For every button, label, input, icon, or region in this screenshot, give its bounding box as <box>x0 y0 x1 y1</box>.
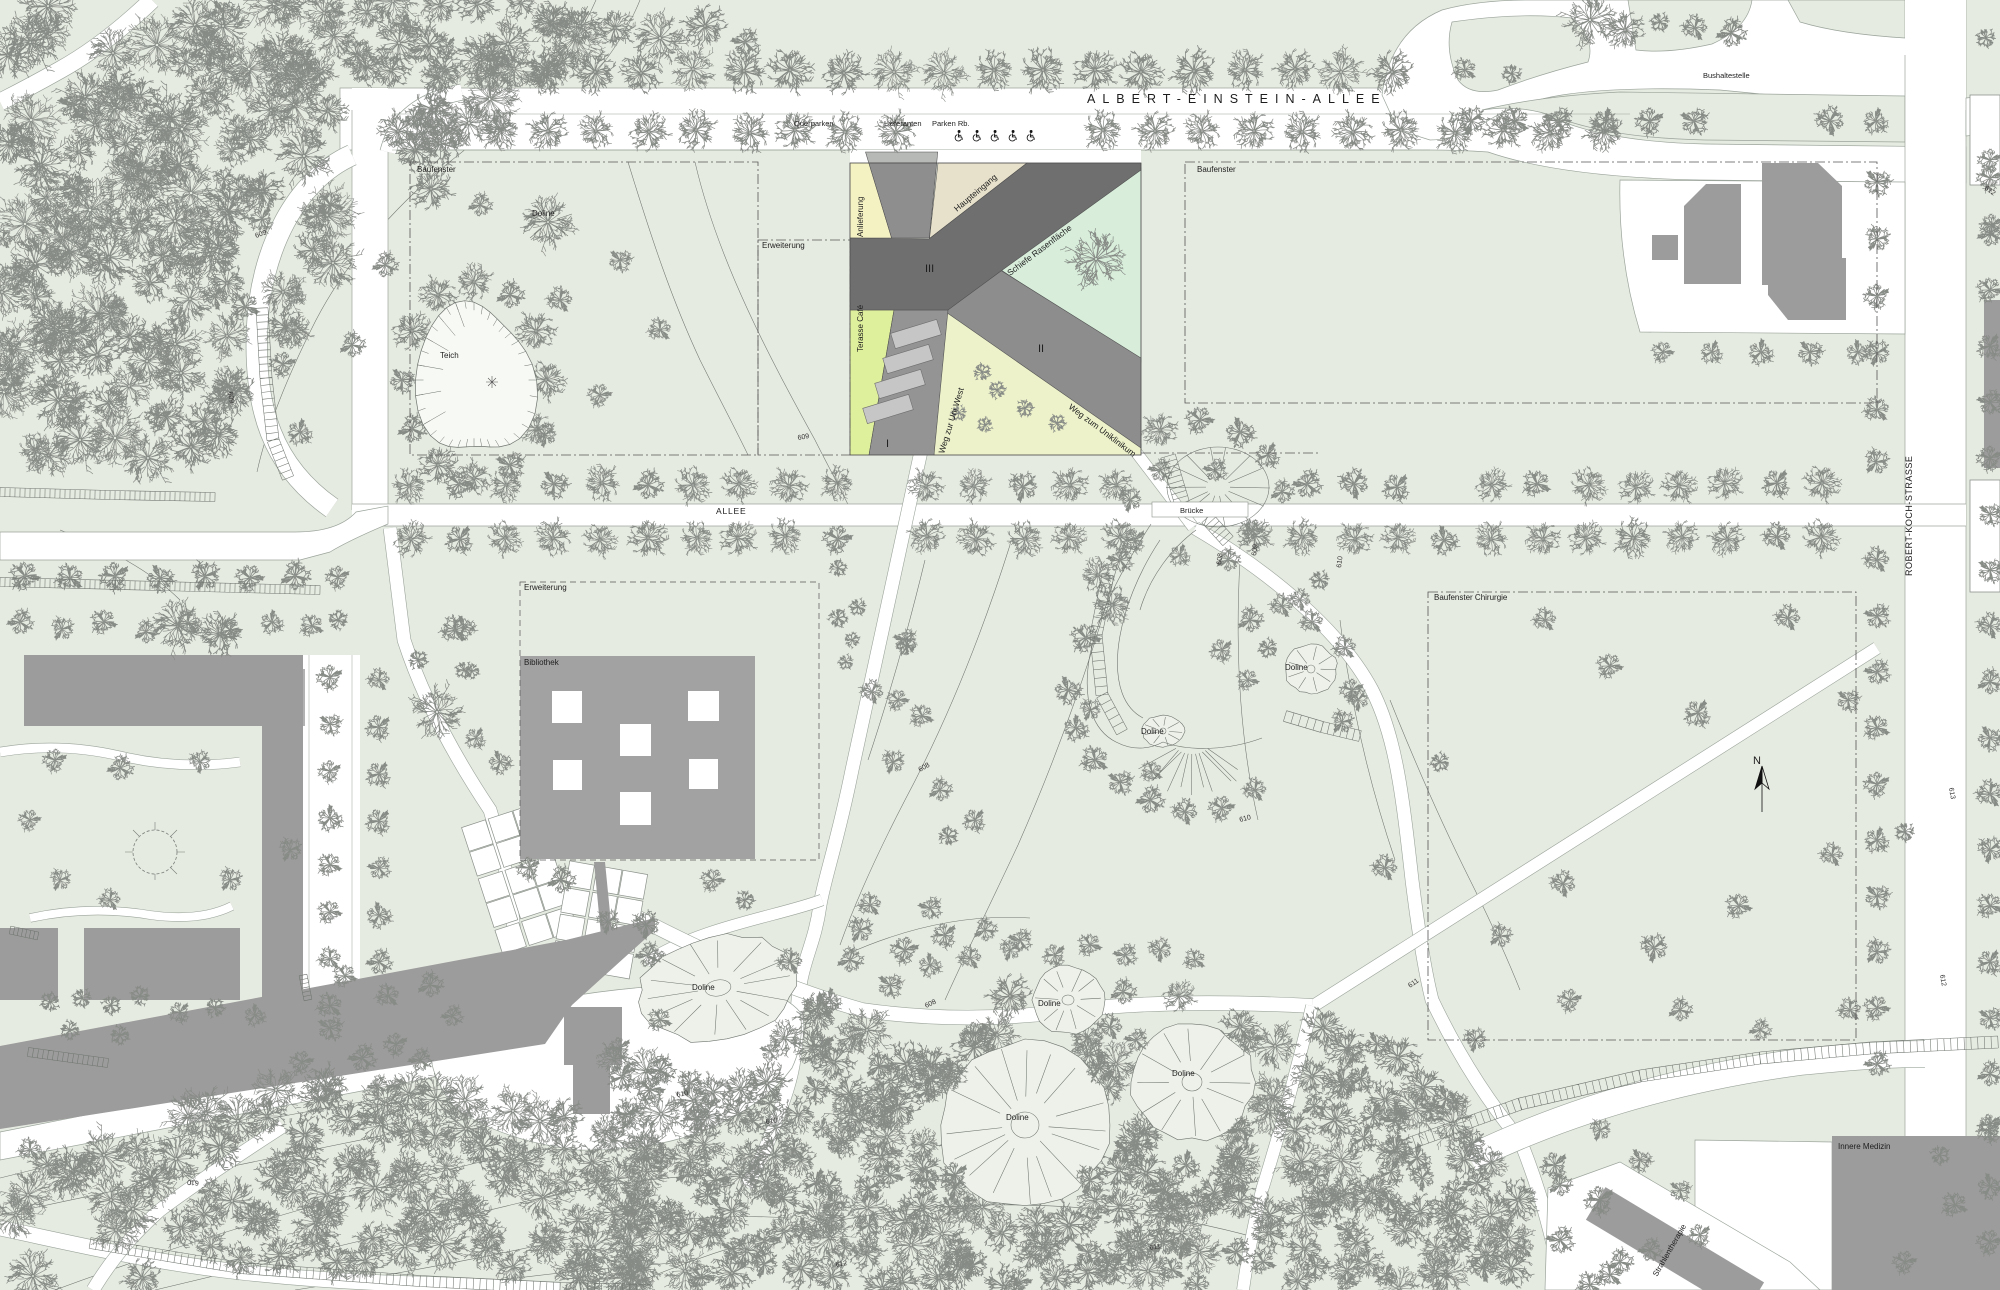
svg-text:Doline: Doline <box>1172 1069 1195 1078</box>
svg-text:Baufenster: Baufenster <box>1197 165 1236 174</box>
svg-text:III: III <box>925 263 934 275</box>
svg-text:I: I <box>886 438 889 450</box>
svg-text:Lieferanten: Lieferanten <box>884 119 922 128</box>
svg-text:Doline: Doline <box>1038 999 1061 1008</box>
svg-text:Doline: Doline <box>1285 663 1308 672</box>
svg-text:Anlieferung: Anlieferung <box>856 197 865 237</box>
svg-text:610: 610 <box>187 1178 199 1186</box>
svg-text:Innere Medizin: Innere Medizin <box>1838 1142 1890 1151</box>
svg-text:Baufenster Chirurgie: Baufenster Chirurgie <box>1434 593 1508 602</box>
svg-text:Bushaltestelle: Bushaltestelle <box>1703 71 1750 80</box>
svg-text:Bibliothek: Bibliothek <box>524 658 560 667</box>
svg-text:ALBERT-EINSTEIN-ALLEE: ALBERT-EINSTEIN-ALLEE <box>1087 92 1387 106</box>
svg-text:610: 610 <box>1336 556 1344 569</box>
svg-text:609: 609 <box>1251 544 1259 557</box>
svg-text:608: 608 <box>1216 553 1224 566</box>
svg-text:N: N <box>1753 755 1761 767</box>
svg-text:ROBERT-KOCH-STRASSE: ROBERT-KOCH-STRASSE <box>1904 456 1914 576</box>
svg-text:Doline: Doline <box>692 983 715 992</box>
svg-text:Doline: Doline <box>1006 1113 1029 1122</box>
svg-text:Erweiterung: Erweiterung <box>524 583 567 592</box>
svg-text:Doline: Doline <box>532 209 555 218</box>
svg-text:Erweiterung: Erweiterung <box>762 241 805 250</box>
svg-text:Parken Rb.: Parken Rb. <box>932 119 970 128</box>
svg-text:Teich: Teich <box>440 351 459 360</box>
svg-text:Brücke: Brücke <box>1180 506 1203 515</box>
svg-text:II: II <box>1038 343 1044 355</box>
svg-text:Doline: Doline <box>1141 727 1164 736</box>
svg-text:Baufenster: Baufenster <box>417 165 456 174</box>
svg-text:Querparken: Querparken <box>794 119 834 128</box>
svg-text:Terasse Café: Terasse Café <box>856 304 865 352</box>
svg-text:ALLEE: ALLEE <box>716 506 746 516</box>
